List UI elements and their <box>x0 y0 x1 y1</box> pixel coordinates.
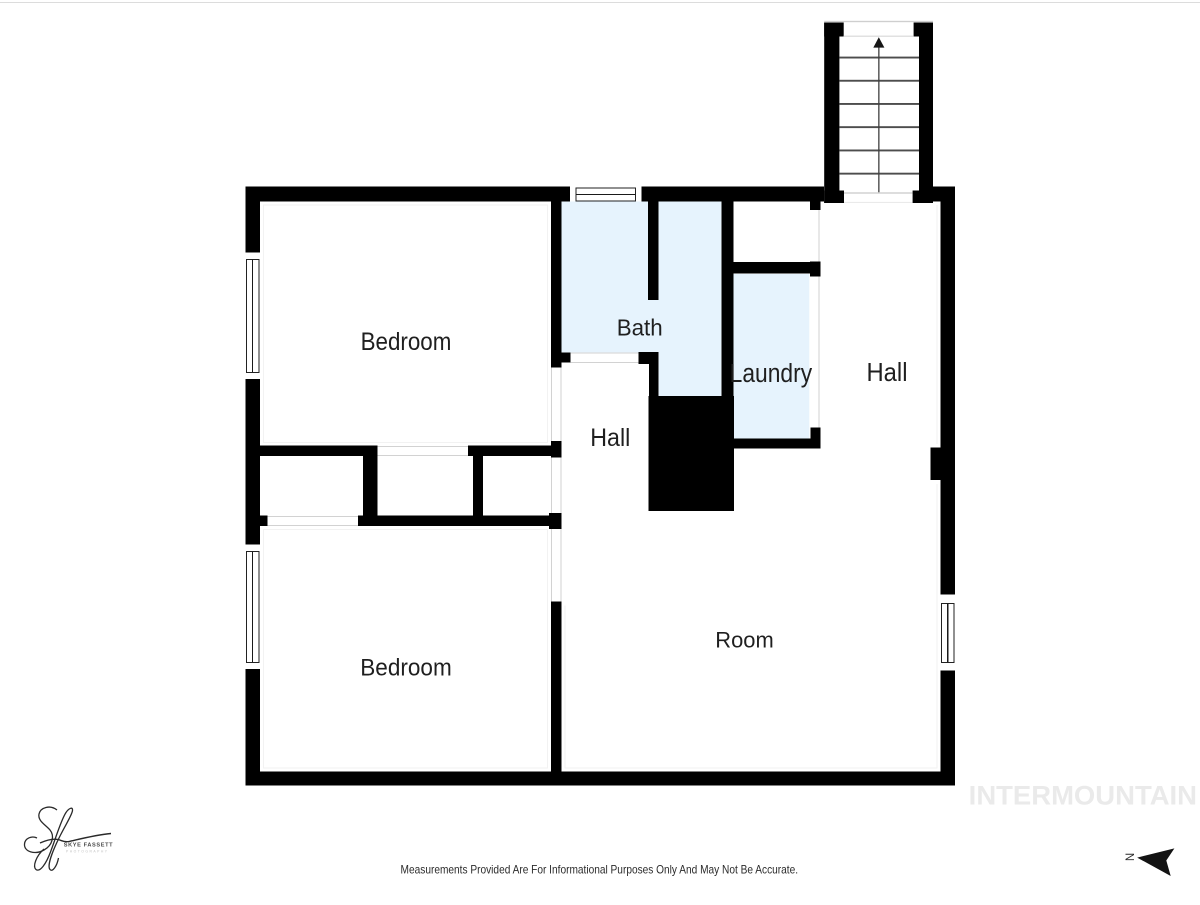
svg-text:Room: Room <box>715 628 774 653</box>
svg-text:INTERMOUNTAIN: INTERMOUNTAIN <box>969 781 1197 811</box>
svg-text:Laundry: Laundry <box>730 360 813 388</box>
svg-text:Bath: Bath <box>617 314 663 340</box>
svg-text:Bedroom: Bedroom <box>360 654 452 681</box>
svg-text:N: N <box>1125 853 1137 861</box>
svg-text:PHOTOGRAPHY: PHOTOGRAPHY <box>66 850 108 854</box>
svg-text:Bedroom: Bedroom <box>361 329 452 356</box>
svg-text:Hall: Hall <box>867 359 908 387</box>
svg-text:Hall: Hall <box>590 424 630 452</box>
svg-text:SKYE FASSETT: SKYE FASSETT <box>64 843 114 849</box>
svg-text:Measurements Provided Are For: Measurements Provided Are For Informatio… <box>401 862 799 876</box>
